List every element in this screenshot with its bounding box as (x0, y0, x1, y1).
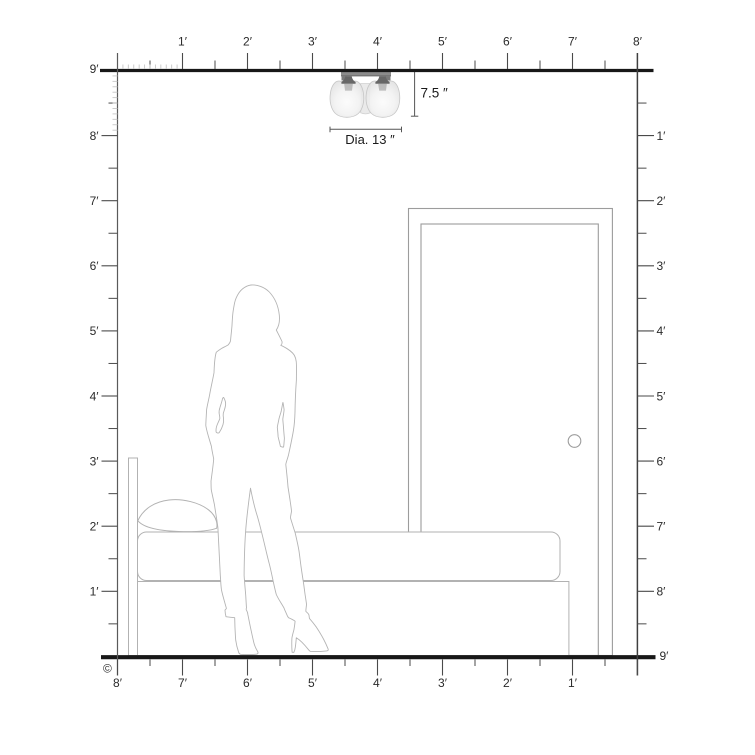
svg-text:5′: 5′ (438, 35, 448, 49)
svg-text:2′: 2′ (657, 194, 667, 208)
svg-text:6′: 6′ (503, 35, 513, 49)
svg-text:1′: 1′ (178, 35, 188, 49)
svg-text:5′: 5′ (308, 676, 318, 690)
svg-text:8′: 8′ (633, 35, 643, 49)
svg-text:9′: 9′ (660, 649, 670, 663)
svg-text:4′: 4′ (90, 389, 100, 403)
svg-text:3′: 3′ (90, 454, 100, 468)
svg-text:5′: 5′ (90, 324, 100, 338)
svg-text:7′: 7′ (90, 194, 100, 208)
svg-text:6′: 6′ (90, 259, 100, 273)
svg-text:2′: 2′ (90, 520, 100, 534)
svg-text:3′: 3′ (657, 259, 667, 273)
svg-text:6′: 6′ (243, 676, 253, 690)
svg-text:1′: 1′ (657, 129, 667, 143)
svg-text:1′: 1′ (90, 585, 100, 599)
svg-text:4′: 4′ (657, 324, 667, 338)
svg-text:1′: 1′ (568, 676, 578, 690)
svg-text:8′: 8′ (90, 129, 100, 143)
svg-text:7′: 7′ (178, 676, 188, 690)
svg-text:4′: 4′ (373, 35, 383, 49)
svg-text:7′: 7′ (657, 520, 667, 534)
svg-text:7.5 ″: 7.5 ″ (421, 85, 449, 100)
svg-text:7′: 7′ (568, 35, 578, 49)
svg-text:2′: 2′ (243, 35, 253, 49)
svg-text:3′: 3′ (308, 35, 318, 49)
svg-text:8′: 8′ (657, 585, 667, 599)
svg-text:4′: 4′ (373, 676, 383, 690)
svg-text:9′: 9′ (90, 62, 100, 76)
svg-text:6′: 6′ (657, 454, 667, 468)
svg-text:Dia. 13 ″: Dia. 13 ″ (345, 132, 395, 147)
svg-text:2′: 2′ (503, 676, 513, 690)
svg-text:8′: 8′ (113, 676, 123, 690)
svg-text:©: © (103, 662, 112, 676)
svg-text:5′: 5′ (657, 389, 667, 403)
svg-text:3′: 3′ (438, 676, 448, 690)
